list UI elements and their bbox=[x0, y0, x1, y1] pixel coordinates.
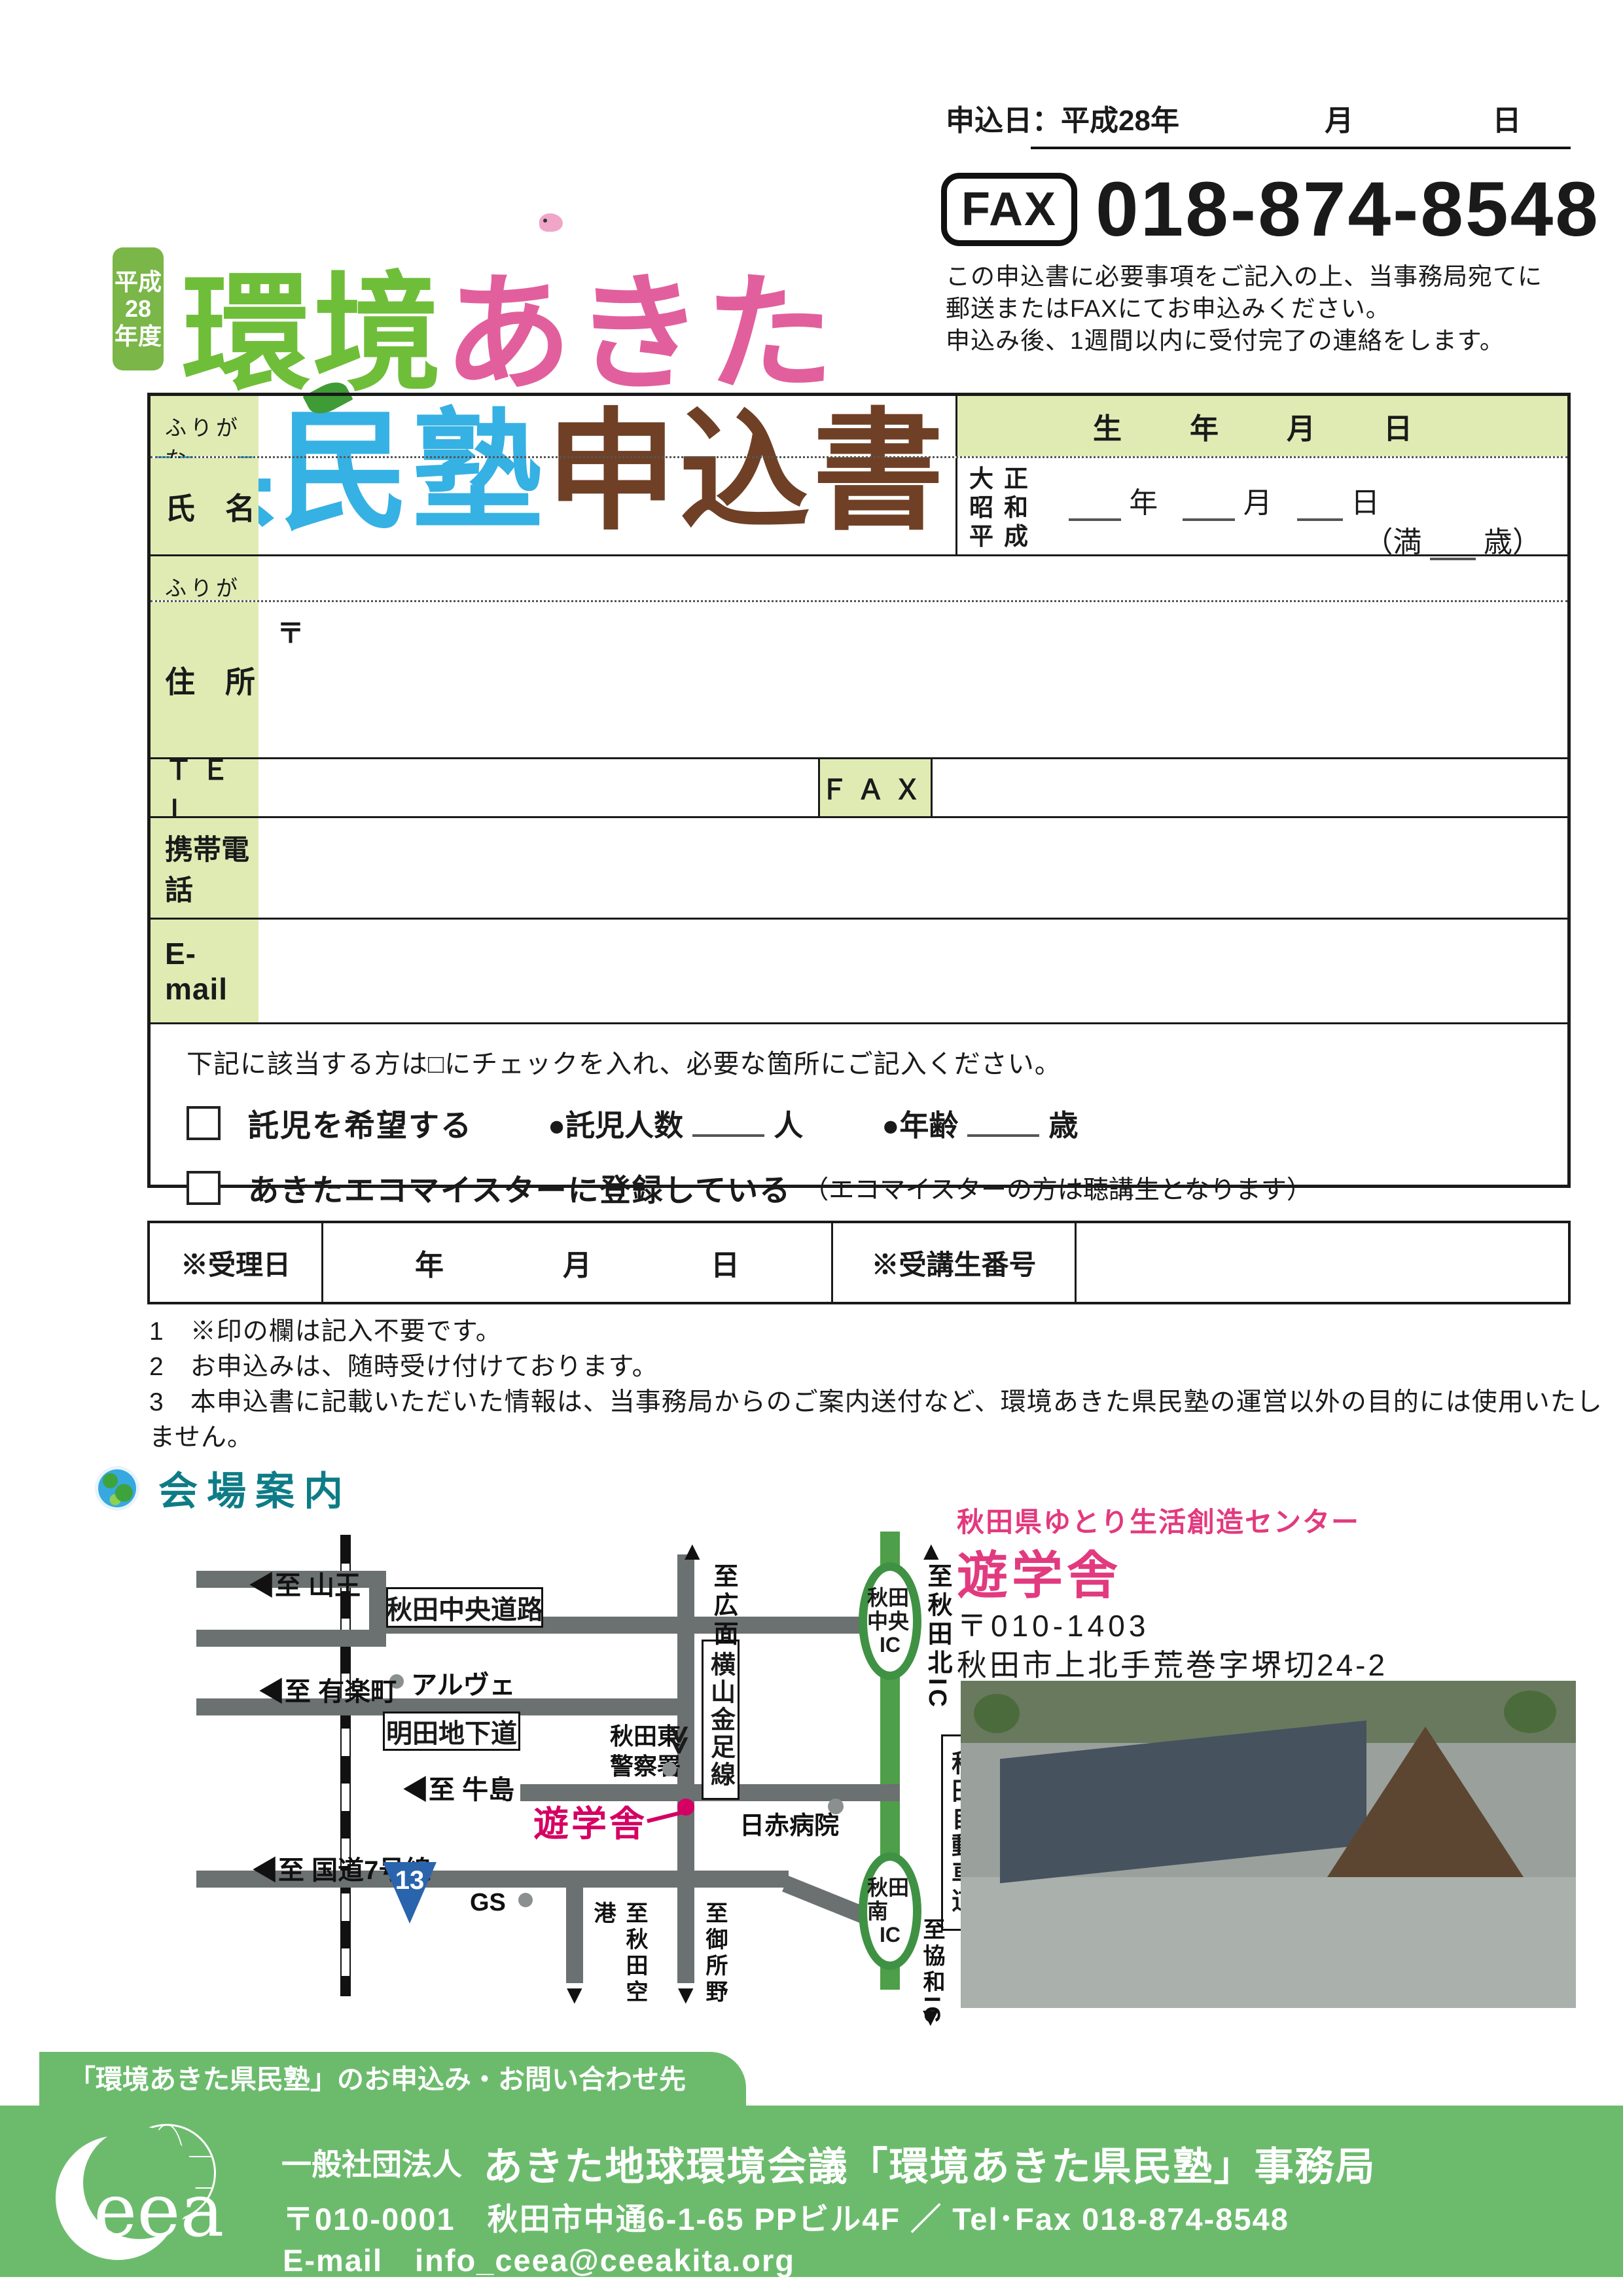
venue-photo bbox=[961, 1681, 1576, 2008]
venue-guide-title: 会場案内 bbox=[158, 1460, 352, 1516]
instruction-line: 申込み後、1週間以内に受付完了の連絡をします。 bbox=[946, 325, 1543, 357]
year-badge-line: 年度 bbox=[115, 323, 162, 350]
era-heisei: 平成 bbox=[969, 522, 1039, 551]
venue-postal: 〒010-1403 bbox=[957, 1602, 1149, 1645]
tel-input-area[interactable] bbox=[259, 759, 818, 816]
receipt-month: 月 bbox=[563, 1242, 592, 1283]
yugakusha-dot bbox=[677, 1799, 694, 1816]
postal-mark: 〒 bbox=[259, 602, 1567, 651]
note-item: 1 ※印の欄は記入不要です。 bbox=[149, 1314, 1623, 1350]
minami-ic-line1: 秋田南 bbox=[867, 1876, 913, 1923]
instruction-line: この申込書に必要事項をご記入の上、当事務局宛てに bbox=[946, 260, 1543, 293]
email-label: E-mail bbox=[151, 920, 259, 1022]
footer-contact-tab: 「環境あきた県民塾」のお申込み・お問い合わせ先 bbox=[39, 2052, 746, 2107]
furigana-label: ふりがな bbox=[151, 556, 259, 600]
childcare-count-blank[interactable] bbox=[692, 1109, 764, 1137]
mobile-label: 携帯電話 bbox=[151, 818, 259, 918]
name-input-area[interactable] bbox=[259, 458, 955, 554]
road bbox=[196, 1630, 386, 1647]
childcare-checkbox[interactable] bbox=[187, 1106, 221, 1140]
venue-guide-heading: 会場案内 bbox=[98, 1460, 352, 1516]
notes-list: 1 ※印の欄は記入不要です。 2 お申込みは、随時受け付けております。 3 本申… bbox=[149, 1314, 1623, 1456]
fax-number: 018-874-8548 bbox=[1096, 165, 1600, 254]
map-label-goshono: 至御所野 bbox=[699, 1901, 731, 2006]
map-label-nisseki: 日赤病院 bbox=[740, 1805, 839, 1841]
consent-section: 下記に該当する方は□にチェックを入れ、必要な箇所にご記入ください。 託児を希望す… bbox=[151, 1024, 1567, 1185]
childcare-age-label: ●年齢 bbox=[882, 1102, 958, 1144]
birth-year-blank[interactable] bbox=[1069, 493, 1121, 521]
chuo-ic-badge: 秋田中央 IC bbox=[859, 1562, 921, 1680]
route13-badge: 13 bbox=[383, 1862, 437, 1924]
map-label-chuo-road: 秋田中央道路 bbox=[386, 1587, 543, 1628]
photo-tree bbox=[974, 1694, 1020, 1733]
footer-email-line: E-mail info_ceea@ceeakita.org bbox=[283, 2235, 795, 2280]
gs-dot bbox=[518, 1893, 533, 1907]
chuo-ic-line2: IC bbox=[880, 1633, 901, 1657]
ceea-logo-text: eea bbox=[94, 2168, 224, 2253]
map-label-sanno: ◀至 山王 bbox=[249, 1564, 361, 1602]
childcare-option-row: 託児を希望する ●託児人数 人 ●年齢 歳 bbox=[187, 1100, 1567, 1145]
chuo-ic-line1: 秋田中央 bbox=[867, 1586, 913, 1633]
mobile-row: 携帯電話 bbox=[151, 818, 1567, 920]
address-furigana-input-area[interactable] bbox=[259, 556, 1567, 600]
student-number-cell[interactable] bbox=[1077, 1223, 1568, 1302]
email-row: E-mail bbox=[151, 920, 1567, 1024]
furigana-input-area[interactable] bbox=[259, 396, 955, 456]
photo-roof-main bbox=[1000, 1721, 1366, 1884]
map-label-yurakucho: ◀至 有楽町 bbox=[259, 1670, 397, 1708]
year-badge-line: 28 bbox=[125, 295, 151, 322]
application-instructions: この申込書に必要事項をご記入の上、当事務局宛てに 郵送またはFAXにてお申込みく… bbox=[946, 260, 1543, 357]
age-suffix: 歳） bbox=[1484, 526, 1541, 558]
footer-address-line: 〒010-0001 秋田市中通6-1-65 PPビル4F ／ Tel･Fax 0… bbox=[283, 2194, 1289, 2239]
map-label-kanaashi: 横山金足線 bbox=[702, 1640, 740, 1800]
fax-label: ＦＡＸ bbox=[818, 759, 933, 816]
address-label: 住 所 bbox=[151, 602, 259, 757]
apply-date-line: 申込日：平成28年 月 日 bbox=[946, 97, 1521, 139]
map-label-alve: アルヴェ bbox=[411, 1664, 516, 1702]
receipt-date-label: ※受理日 bbox=[150, 1223, 321, 1302]
ecomeister-checkbox[interactable] bbox=[187, 1171, 221, 1205]
era-options: 大正 昭和 平成 bbox=[969, 465, 1039, 551]
apply-date-underline bbox=[1031, 147, 1571, 149]
applicant-info-table: ふりがな 生 年 月 日 氏 名 大正 昭和 平成 年 月 日 bbox=[147, 393, 1571, 1188]
apply-day-label: 日 bbox=[1492, 105, 1521, 137]
arrow-down-icon: ▼ bbox=[562, 1981, 588, 2010]
globe-icon bbox=[98, 1469, 136, 1507]
office-use-table: ※受理日 年 月 日 ※受講生番号 bbox=[147, 1221, 1571, 1304]
tel-fax-row: ＴＥＬ ＦＡＸ bbox=[151, 759, 1567, 818]
map-label-kita-ic: 至秋田北IC bbox=[919, 1563, 955, 1711]
org-prefix: 一般社団法人 bbox=[281, 2147, 462, 2181]
fax-input-area[interactable] bbox=[933, 759, 1567, 816]
photo-tree bbox=[1504, 1691, 1556, 1733]
airport-road-line bbox=[566, 1884, 583, 1983]
ecomeister-option-row: あきたエコマイスターに登録している （エコマイスターの方は聴講生となります） bbox=[187, 1165, 1567, 1210]
ecomeister-label: あきたエコマイスターに登録している bbox=[248, 1165, 791, 1210]
map-label-ushijima: ◀至 牛島 bbox=[402, 1768, 514, 1806]
year-suffix: 年 bbox=[1129, 487, 1158, 519]
name-row: 氏 名 大正 昭和 平成 年 月 日 （満 bbox=[151, 458, 1567, 556]
tel-label: ＴＥＬ bbox=[151, 759, 259, 816]
org-name: あきた地球環境会議「環境あきた県民塾」事務局 bbox=[483, 2145, 1376, 2189]
minami-ic-line2: IC bbox=[880, 1923, 901, 1946]
day-suffix: 日 bbox=[1351, 487, 1380, 519]
map-label-yugakusha: 遊学舎 bbox=[533, 1795, 647, 1846]
map-label-hiromen: 至広面 bbox=[705, 1563, 741, 1649]
age-prefix: （満 bbox=[1364, 526, 1422, 558]
arrow-down-icon: ▼ bbox=[673, 1981, 699, 2010]
childcare-age-blank[interactable] bbox=[967, 1109, 1039, 1137]
map-label-myoden: 明田地下道 bbox=[383, 1712, 520, 1751]
year-badge-line: 平成 bbox=[115, 268, 162, 295]
apply-month-label: 月 bbox=[1325, 105, 1353, 137]
arrow-up-icon: ▲ bbox=[679, 1537, 705, 1566]
student-number-label: ※受講生番号 bbox=[833, 1223, 1077, 1302]
map-label-airport: 至秋田空港 bbox=[587, 1901, 651, 2029]
instruction-line: 郵送またはFAXにてお申込みください。 bbox=[946, 293, 1543, 325]
access-map: ◀至 山王 秋田中央道路 アルヴェ ◀至 有楽町 明田地下道 秋田東 警察署 ≫… bbox=[177, 1525, 995, 2029]
receipt-day: 日 bbox=[711, 1242, 740, 1283]
receipt-year: 年 bbox=[415, 1242, 444, 1283]
bird-icon bbox=[539, 213, 563, 232]
birthdate-blanks: 年 月 日 bbox=[1069, 479, 1380, 521]
address-row: 住 所 〒 bbox=[151, 602, 1567, 759]
furigana-label: ふりがな bbox=[151, 396, 259, 456]
arrow-down-icon: ▼ bbox=[918, 2003, 944, 2032]
map-label-gs: GS bbox=[470, 1889, 506, 1917]
nisseki-dot bbox=[828, 1799, 844, 1814]
era-taisho: 大正 bbox=[969, 465, 1039, 493]
note-item: 2 お申込みは、随時受け付けております。 bbox=[149, 1350, 1623, 1385]
birth-month-blank[interactable] bbox=[1183, 493, 1235, 521]
apply-date-label: 申込日：平成28年 bbox=[946, 105, 1179, 137]
furigana-row-1: ふりがな 生 年 月 日 bbox=[151, 396, 1567, 458]
fax-icon: FAX bbox=[941, 173, 1077, 246]
consent-instruction: 下記に該当する方は□にチェックを入れ、必要な箇所にご記入ください。 bbox=[187, 1043, 1567, 1081]
ceea-logo: eea bbox=[56, 2117, 226, 2271]
mobile-input-area[interactable] bbox=[259, 818, 1567, 918]
email-input-area[interactable] bbox=[259, 920, 1567, 1022]
ecomeister-note: （エコマイスターの方は聴講生となります） bbox=[803, 1170, 1312, 1206]
footer-org-line: 一般社団法人 あきた地球環境会議「環境あきた県民塾」事務局 bbox=[281, 2135, 1376, 2192]
address-input-area[interactable]: 〒 bbox=[259, 602, 1567, 757]
childcare-count-label: ●託児人数 bbox=[548, 1102, 683, 1144]
photo-parking bbox=[961, 1877, 1576, 2008]
receipt-date-cell[interactable]: 年 月 日 bbox=[321, 1223, 833, 1302]
childcare-label: 託児を希望する bbox=[248, 1100, 473, 1145]
railway-line bbox=[340, 1535, 351, 1996]
venue-center-title: 遊学舎 bbox=[957, 1535, 1122, 1608]
count-unit: 人 bbox=[774, 1102, 803, 1144]
name-label: 氏 名 bbox=[151, 458, 259, 554]
application-form-page: 平成 28 年度 環境あきた 県民塾申込書 申込日：平成28年 月 日 FAX … bbox=[0, 0, 1623, 2296]
minami-ic-badge: 秋田南 IC bbox=[859, 1852, 921, 1970]
chevron-down-icon: ≫ bbox=[663, 1725, 696, 1751]
note-item: 3 本申込書に記載いただいた情報は、当事務局からのご案内送付など、環境あきた県民… bbox=[149, 1385, 1623, 1456]
venue-center-name: 秋田県ゆとり生活創造センター bbox=[957, 1500, 1360, 1540]
birthdate-cell[interactable]: 大正 昭和 平成 年 月 日 （満 歳） bbox=[955, 458, 1567, 554]
era-showa: 昭和 bbox=[969, 493, 1039, 522]
year-badge: 平成 28 年度 bbox=[113, 247, 164, 370]
age-blank-line: （満 歳） bbox=[1364, 518, 1541, 560]
fax-row: FAX 018-874-8548 bbox=[941, 165, 1600, 254]
venue-address: 秋田市上北手荒巻字堺切24-2 bbox=[957, 1641, 1387, 1685]
police-dot bbox=[662, 1762, 677, 1776]
age-unit: 歳 bbox=[1048, 1102, 1078, 1144]
arrow-up-icon: ▲ bbox=[918, 1537, 944, 1566]
month-suffix: 月 bbox=[1243, 487, 1272, 519]
birthdate-header: 生 年 月 日 bbox=[955, 396, 1567, 456]
furigana-row-2: ふりがな bbox=[151, 556, 1567, 602]
birth-day-blank[interactable] bbox=[1297, 493, 1343, 521]
